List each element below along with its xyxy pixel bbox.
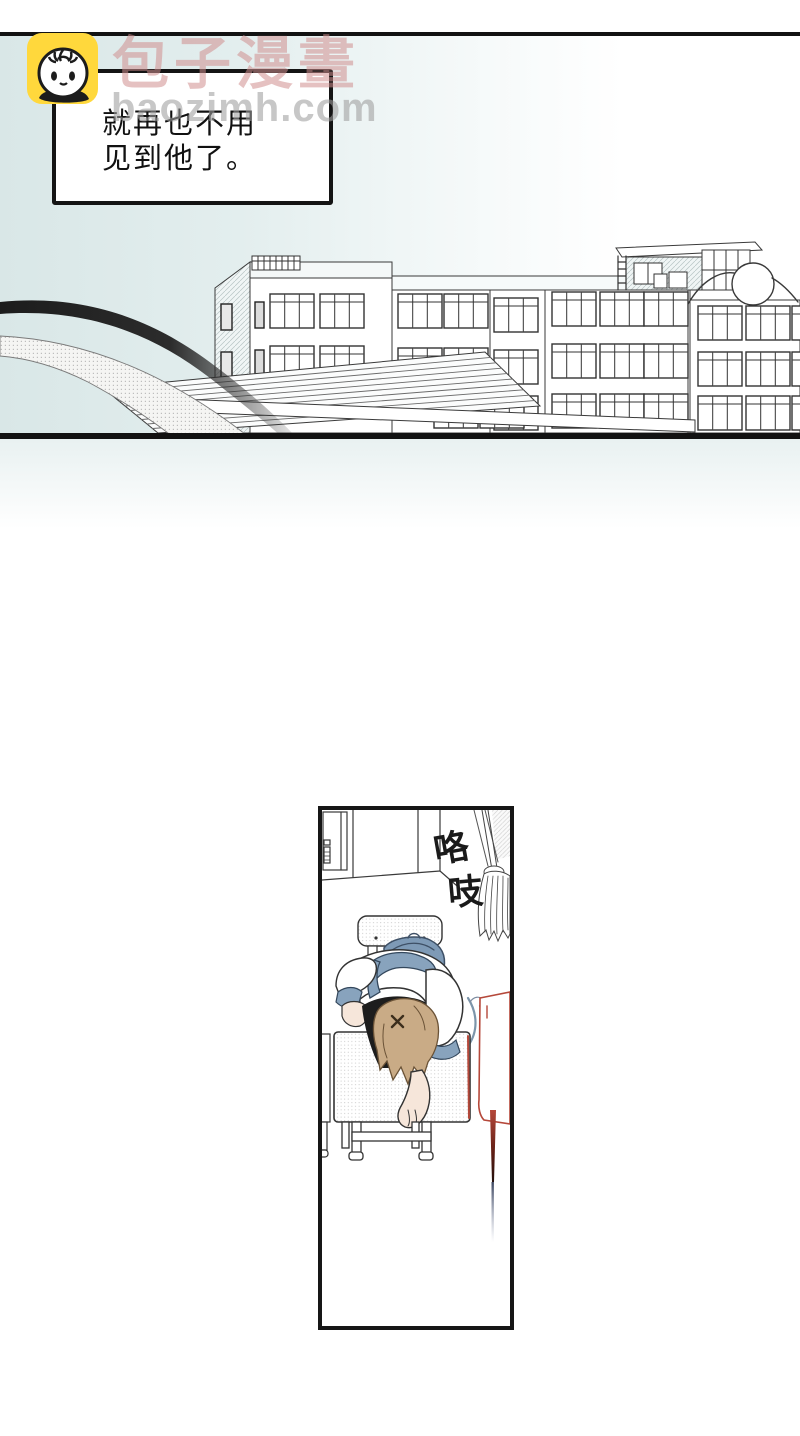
sfx-char-1: 咯 [431, 829, 472, 870]
left-desk-fragment [322, 1034, 330, 1157]
baozi-logo [27, 33, 98, 104]
comic-page: 就再也不用 见到他了。 包子漫畫 baozimh.com [0, 0, 800, 1436]
narration-line-2: 见到他了。 [102, 142, 329, 177]
comic-panel: 咯 吱 [318, 806, 514, 1330]
wall-window [323, 812, 347, 870]
sfx-char-2: 吱 [447, 875, 485, 913]
watermark-site-domain: baozimh.com [111, 88, 378, 128]
floor-fade [0, 439, 800, 529]
watermark-site-name: 包子漫畫 [112, 36, 360, 93]
rooftop-railing [252, 256, 300, 270]
desk-legs [342, 1122, 433, 1160]
baozi-bun-icon [39, 49, 89, 103]
